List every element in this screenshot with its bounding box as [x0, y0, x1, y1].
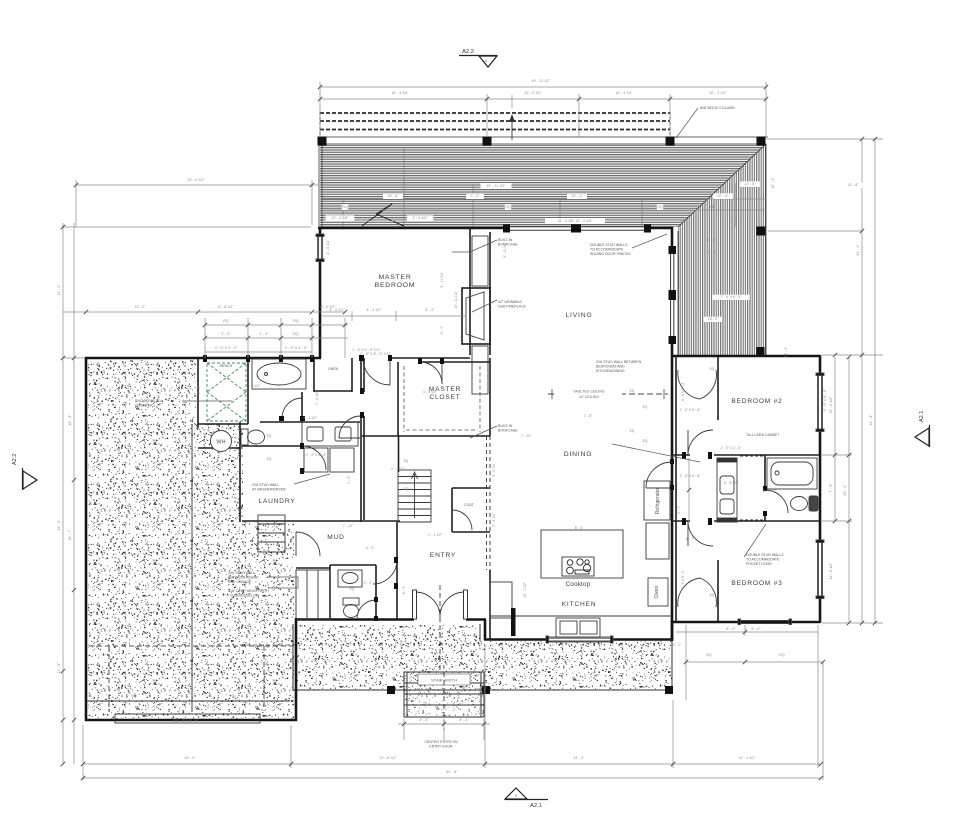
- svg-text:BEDROOMS AND: BEDROOMS AND: [596, 365, 625, 369]
- svg-text:8' - 0": 8' - 0": [751, 627, 761, 631]
- svg-text:Oven: Oven: [654, 586, 660, 599]
- svg-text:10' - 3 1/2": 10' - 3 1/2": [709, 91, 727, 95]
- svg-text:RQ: RQ: [706, 653, 712, 657]
- svg-text:RQ: RQ: [131, 694, 137, 698]
- svg-text:16' - 11 1/2": 16' - 11 1/2": [454, 291, 458, 309]
- svg-text:8X8 WOOD COLUMN: 8X8 WOOD COLUMN: [700, 106, 735, 110]
- svg-text:BEDROOM: BEDROOM: [375, 282, 416, 289]
- svg-text:LINEN: LINEN: [328, 367, 339, 371]
- svg-text:16' - 6": 16' - 6": [387, 194, 399, 198]
- svg-text:16' - 0 3/8" 16' - 0 3/8": 16' - 0 3/8" 16' - 0 3/8": [557, 219, 593, 223]
- svg-text:EQ: EQ: [643, 439, 648, 443]
- svg-text:EQ: EQ: [404, 487, 409, 491]
- svg-text:2' - 6" X 6' - 8": 2' - 6" X 6' - 8": [680, 408, 702, 412]
- svg-text:TO ACCOMMODATE: TO ACCOMMODATE: [590, 248, 624, 252]
- svg-text:7' - 10": 7' - 10": [521, 434, 532, 438]
- svg-text:18' - 0": 18' - 0": [708, 317, 719, 321]
- svg-text:RQ: RQ: [779, 653, 785, 657]
- svg-text:8' - 0": 8' - 0": [726, 627, 736, 631]
- svg-text:2X6 STUD WALL: 2X6 STUD WALL: [252, 483, 279, 487]
- svg-text:2X6 STUD WALL: 2X6 STUD WALL: [228, 571, 255, 575]
- svg-text:4' - 6 1/2": 4' - 6 1/2": [423, 390, 438, 394]
- svg-text:BUILT-IN: BUILT-IN: [498, 424, 513, 428]
- svg-text:Refrigerator: Refrigerator: [655, 487, 661, 514]
- svg-text:10' CEILING: 10' CEILING: [579, 395, 599, 399]
- svg-text:2X6 STUD WALL BETWEEN: 2X6 STUD WALL BETWEEN: [596, 360, 642, 364]
- svg-text:2' - 4 1/2": 2' - 4 1/2": [428, 533, 443, 537]
- svg-text:18" DEEP BENCH WITH: 18" DEEP BENCH WITH: [230, 589, 269, 593]
- svg-text:13' - 0": 13' - 0": [134, 305, 146, 309]
- svg-text:12' - 6": 12' - 6": [57, 662, 61, 674]
- svg-text:2' - 6 1/2": 2' - 6 1/2": [326, 239, 330, 255]
- svg-text:12' - 8": 12' - 8": [717, 194, 729, 198]
- svg-text:TO ACCOMMODATE: TO ACCOMMODATE: [746, 558, 780, 562]
- svg-text:EQ: EQ: [630, 429, 635, 433]
- svg-text:10' - 1 1/2": 10' - 1 1/2": [523, 581, 527, 598]
- svg-text:BOOKCASE: BOOKCASE: [498, 243, 518, 247]
- svg-text:20' - 1": 20' - 1": [571, 194, 583, 198]
- svg-text:2' - 0": 2' - 0": [470, 194, 480, 198]
- svg-text:ENTRY: ENTRY: [430, 552, 456, 559]
- svg-text:BEDROOM #2: BEDROOM #2: [731, 398, 782, 405]
- svg-text:3' - 6": 3' - 6": [347, 475, 351, 484]
- svg-text:4' - 4 1/2": 4' - 4 1/2": [366, 308, 382, 312]
- svg-text:BENCH: BENCH: [220, 364, 233, 368]
- svg-text:A2.2: A2.2: [462, 49, 474, 55]
- svg-text:SLIDING DOOR TRACKS: SLIDING DOOR TRACKS: [590, 252, 631, 256]
- svg-text:21' - 6 1/2": 21' - 6 1/2": [379, 756, 397, 760]
- svg-text:4' - 7": 4' - 7": [677, 505, 681, 514]
- svg-text:RQ: RQ: [293, 332, 299, 336]
- svg-text:DOUBLE STUD WALLS: DOUBLE STUD WALLS: [746, 553, 784, 557]
- svg-text:ENTRY DOOR: ENTRY DOOR: [429, 745, 453, 749]
- svg-text:3' - 0" X 3' - 0": 3' - 0" X 3' - 0": [215, 346, 238, 350]
- svg-text:CUBBIES BELOW: CUBBIES BELOW: [230, 594, 260, 598]
- svg-text:EQ: EQ: [710, 205, 715, 209]
- svg-text:CENTER STEPS ON: CENTER STEPS ON: [424, 740, 458, 744]
- svg-text:5' - 6 1/2": 5' - 6 1/2": [763, 489, 778, 493]
- svg-text:DINING: DINING: [564, 451, 593, 458]
- svg-text:4' - 2 1/2": 4' - 2 1/2": [303, 416, 318, 420]
- svg-text:22' - 0": 22' - 0": [184, 756, 196, 760]
- svg-text:2' - 2": 2' - 2": [673, 643, 682, 647]
- svg-text:8' - 2": 8' - 2": [459, 718, 469, 722]
- svg-text:BETWEEN HOUSE: BETWEEN HOUSE: [228, 576, 259, 580]
- svg-text:18' - 4 3/4": 18' - 4 3/4": [391, 91, 409, 95]
- svg-text:5' - 8 1/2": 5' - 8 1/2": [724, 481, 739, 485]
- svg-text:8' - 0": 8' - 0": [575, 526, 584, 530]
- svg-text:16' - 0" X 8' - 0": 16' - 0" X 8' - 0": [174, 719, 199, 723]
- svg-text:LIVING: LIVING: [565, 312, 592, 319]
- svg-text:CLOSET: CLOSET: [429, 394, 460, 401]
- svg-text:13' - 8": 13' - 8": [847, 183, 859, 187]
- svg-text:42" VIEWABLE: 42" VIEWABLE: [498, 300, 523, 304]
- svg-text:8' - 3": 8' - 3": [402, 585, 406, 594]
- svg-text:3' - 1": 3' - 1": [440, 325, 444, 334]
- svg-text:RQ: RQ: [657, 205, 663, 209]
- svg-text:8' - 2": 8' - 2": [425, 308, 435, 312]
- svg-text:7' - 10": 7' - 10": [343, 524, 354, 528]
- svg-text:POCKET DOOR: POCKET DOOR: [746, 562, 772, 566]
- svg-text:BUILT-IN: BUILT-IN: [498, 238, 513, 242]
- svg-text:A2.2: A2.2: [12, 454, 18, 465]
- svg-text:1' - 6": 1' - 6": [708, 238, 717, 242]
- svg-text:4' - 7": 4' - 7": [708, 250, 717, 254]
- svg-text:49' - 11 1/2": 49' - 11 1/2": [487, 184, 507, 188]
- svg-text:5' - 11 3/4": 5' - 11 3/4": [440, 271, 444, 287]
- svg-text:EQ: EQ: [643, 405, 648, 409]
- svg-text:BEDROOM #3: BEDROOM #3: [731, 580, 782, 587]
- svg-text:2' - 0 1/2": 2' - 0 1/2": [391, 467, 406, 471]
- svg-text:7' - 6 1/2": 7' - 6 1/2": [315, 390, 319, 405]
- svg-text:49' - 11 1/2": 49' - 11 1/2": [532, 79, 552, 83]
- svg-text:3' - 9 1/2": 3' - 9 1/2": [492, 512, 496, 527]
- svg-text:2' - 0": 2' - 0": [221, 332, 231, 336]
- svg-text:9' - 11 3/4": 9' - 11 3/4": [503, 241, 507, 257]
- svg-text:2' - 4" X 6' - 8": 2' - 4" X 6' - 8": [306, 453, 328, 457]
- svg-text:11' - 6 1/2": 11' - 6 1/2": [829, 562, 833, 580]
- svg-text:RQ: RQ: [342, 205, 348, 209]
- svg-text:9' - 8" X 8' - 8": 9' - 8" X 8' - 8": [823, 388, 827, 411]
- svg-text:EQ: EQ: [404, 459, 409, 463]
- svg-text:LAUNDRY: LAUNDRY: [259, 498, 296, 505]
- svg-text:MUD: MUD: [327, 534, 344, 541]
- svg-text:10' - 3 1/4": 10' - 3 1/4": [615, 91, 633, 95]
- svg-text:EQ: EQ: [267, 457, 272, 461]
- svg-text:MASTER: MASTER: [378, 274, 411, 281]
- svg-text:2' - 6" X 6' - 8": 2' - 6" X 6' - 8": [721, 446, 743, 450]
- svg-text:39' - 4": 39' - 4": [843, 484, 847, 496]
- svg-text:EQ: EQ: [350, 587, 355, 591]
- svg-text:SHOWERHEAD: SHOWERHEAD: [135, 399, 161, 403]
- svg-text:5' - 0 3/8": 5' - 0 3/8": [412, 216, 428, 220]
- svg-text:AT WASHER/DRYER: AT WASHER/DRYER: [252, 488, 286, 492]
- svg-text:2' - 8" X 4' - 0": 2' - 8" X 4' - 0": [285, 346, 308, 350]
- svg-text:4' - 0 1/2": 4' - 0 1/2": [329, 308, 345, 312]
- svg-text:2' - 6" X 6' - 8": 2' - 6" X 6' - 8": [721, 295, 743, 299]
- svg-text:7' - 8": 7' - 8": [584, 414, 593, 418]
- svg-text:EQ: EQ: [630, 389, 635, 393]
- svg-text:40' - 6": 40' - 6": [57, 519, 61, 531]
- svg-text:2' - 0": 2' - 0": [395, 641, 404, 645]
- svg-text:18' - 8": 18' - 8": [89, 494, 93, 505]
- svg-text:EQ: EQ: [710, 367, 715, 371]
- svg-text:6' - 0 1/2": 6' - 0 1/2": [246, 384, 261, 388]
- svg-text:2' - 6" X 6' - 8": 2' - 6" X 6' - 8": [680, 474, 702, 478]
- svg-text:VAULTED CEILING: VAULTED CEILING: [573, 390, 605, 394]
- svg-text:RQ: RQ: [505, 205, 511, 209]
- svg-text:9' - 8 X 8' - 8: 9' - 8 X 8' - 8: [681, 571, 685, 590]
- svg-text:5' - 5 1/2": 5' - 5 1/2": [492, 462, 496, 477]
- svg-text:12' - 0 3/8": 12' - 0 3/8": [331, 216, 349, 220]
- svg-text:6' - 6 1/2": 6' - 6 1/2": [218, 305, 234, 309]
- svg-text:14' - 4": 14' - 4": [57, 284, 61, 296]
- svg-text:Cooktop: Cooktop: [566, 581, 591, 588]
- svg-text:GAS FIREPLACE: GAS FIREPLACE: [498, 305, 526, 309]
- svg-text:1' - 0": 1' - 0": [259, 332, 269, 336]
- svg-text:COAT: COAT: [464, 503, 473, 507]
- svg-text:DOUBLE STUD WALLS: DOUBLE STUD WALLS: [590, 243, 628, 247]
- svg-text:8' - 2": 8' - 2": [419, 718, 429, 722]
- svg-text:DIVERTER: DIVERTER: [135, 404, 153, 408]
- svg-text:KITCHEN/DINING: KITCHEN/DINING: [596, 369, 625, 373]
- svg-text:16' - 4": 16' - 4": [784, 346, 788, 357]
- svg-text:19' - 8": 19' - 8": [68, 414, 72, 426]
- svg-text:TALL LINEN CABINET: TALL LINEN CABINET: [746, 433, 779, 437]
- svg-text:AND GARAGE: AND GARAGE: [228, 580, 252, 584]
- svg-text:EQ: EQ: [267, 434, 272, 438]
- svg-text:RQ: RQ: [230, 694, 236, 698]
- svg-text:RQ: RQ: [223, 319, 229, 323]
- svg-text:2' - 8" X 8' - 0" C/O: 2' - 8" X 8' - 0" C/O: [360, 352, 390, 356]
- svg-text:9' - 8 X 8' - 8: 9' - 8 X 8' - 8: [681, 383, 685, 402]
- svg-text:31' - 0": 31' - 0": [573, 756, 585, 760]
- svg-text:KITCHEN: KITCHEN: [562, 601, 597, 608]
- svg-text:13' - 8": 13' - 8": [744, 182, 756, 186]
- svg-text:RQ: RQ: [293, 319, 299, 323]
- svg-text:81' - 8": 81' - 8": [446, 770, 458, 774]
- svg-text:2' - 0": 2' - 0": [364, 581, 373, 585]
- svg-text:A2.1: A2.1: [919, 411, 925, 422]
- svg-text:2' - 8" X 6' - 0" C/O: 2' - 8" X 6' - 0" C/O: [352, 348, 380, 352]
- svg-text:7' - 9": 7' - 9": [829, 483, 833, 493]
- svg-text:3' - 0": 3' - 0": [197, 385, 201, 394]
- svg-text:BOOKCASE: BOOKCASE: [498, 429, 518, 433]
- svg-text:10' - 4": 10' - 4": [771, 177, 775, 189]
- svg-text:EQ: EQ: [710, 593, 715, 597]
- svg-text:WH: WH: [216, 440, 225, 446]
- svg-text:11' - 6 1/2": 11' - 6 1/2": [829, 396, 833, 414]
- svg-text:16' - 7": 16' - 7": [68, 529, 72, 541]
- svg-text:44' - 8": 44' - 8": [869, 414, 873, 426]
- svg-text:3' - 0": 3' - 0": [363, 369, 367, 378]
- svg-text:24' - 0 1/2": 24' - 0 1/2": [187, 178, 205, 182]
- svg-text:34' - 4": 34' - 4": [856, 244, 860, 256]
- svg-text:4' - 0": 4' - 0": [366, 546, 375, 550]
- svg-text:14' - 1 1/2": 14' - 1 1/2": [738, 756, 756, 760]
- svg-text:A2.1: A2.1: [530, 803, 542, 809]
- svg-text:10' - 0 1/2": 10' - 0 1/2": [524, 91, 542, 95]
- svg-text:6' - 7": 6' - 7": [686, 537, 695, 541]
